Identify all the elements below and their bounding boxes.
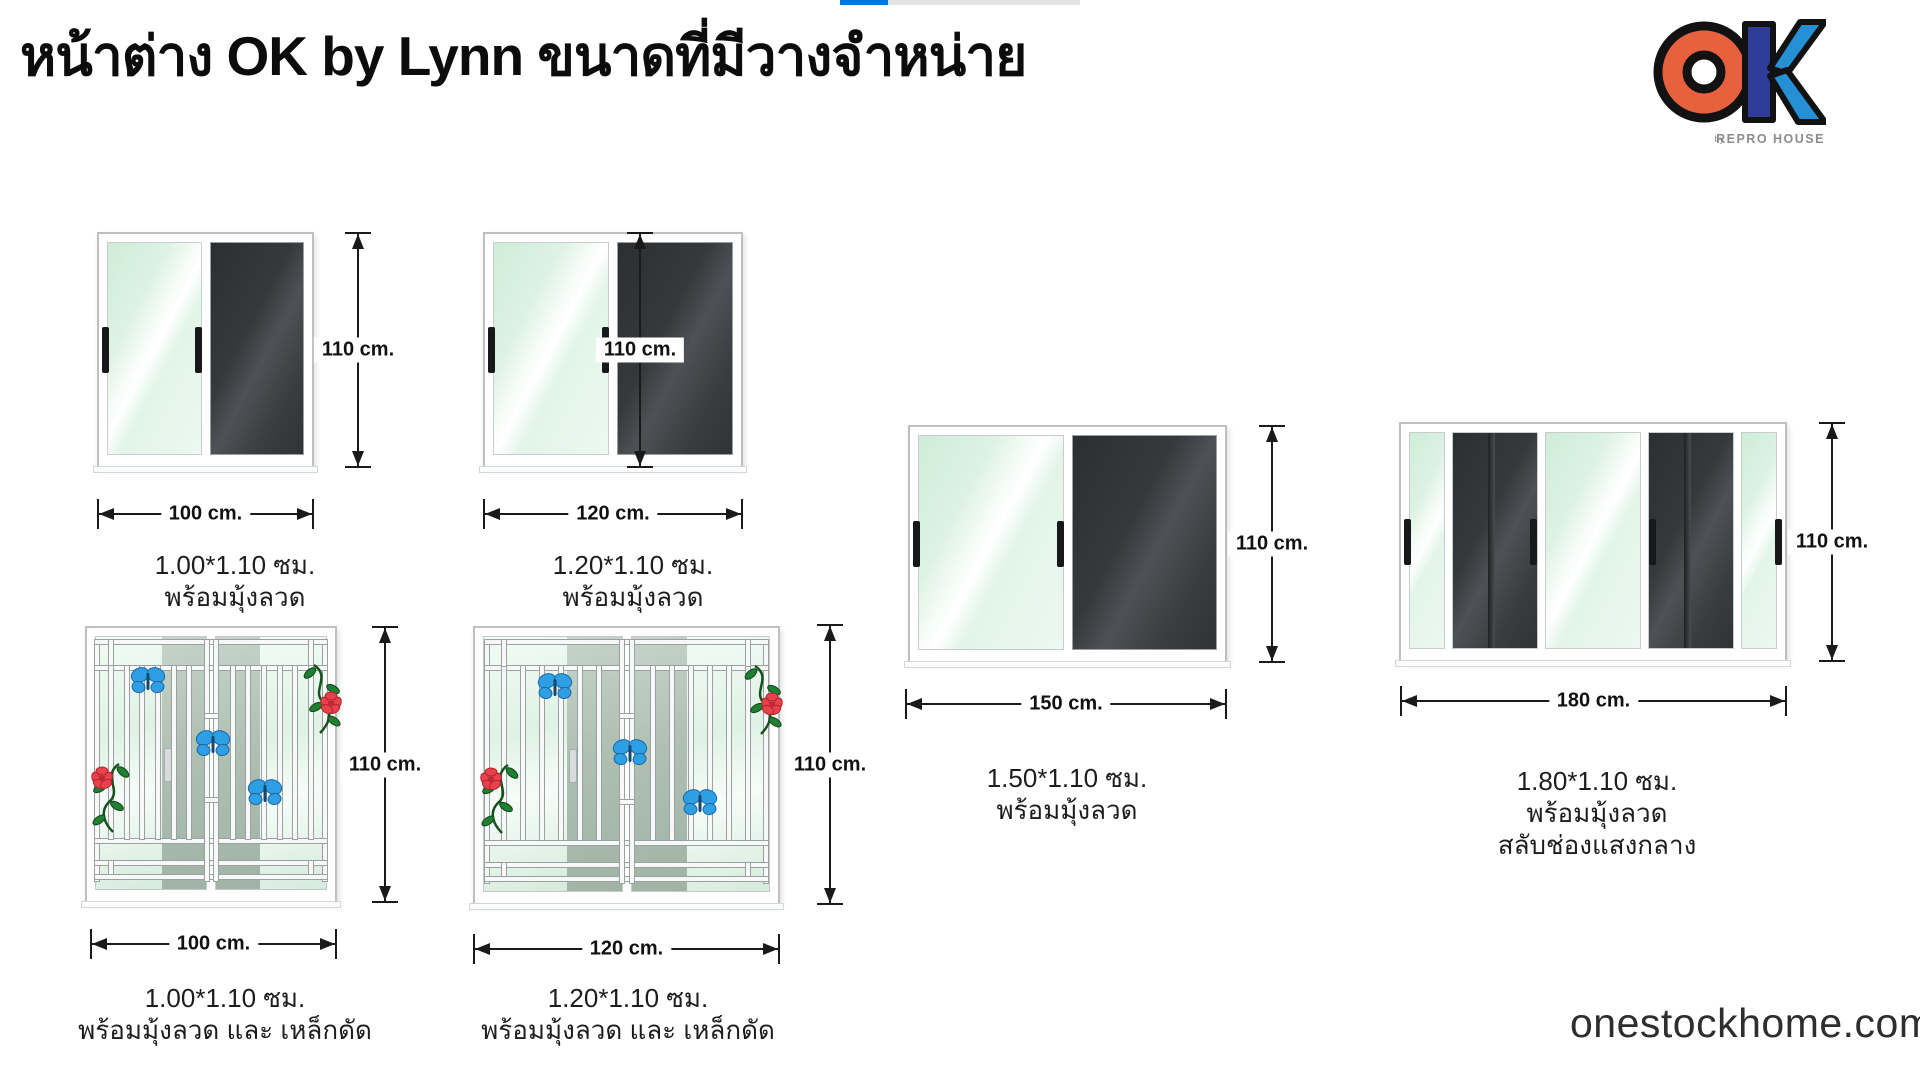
width-dimension-label: 150 cm. xyxy=(1021,692,1110,717)
caption-line: 1.20*1.10 ซม. xyxy=(458,982,798,1014)
screen-panel xyxy=(1452,432,1537,649)
screen-panel xyxy=(210,242,305,455)
window-sill xyxy=(81,901,341,908)
caption-line: พร้อมมุ้งลวด และ เหล็กดัด xyxy=(458,1014,798,1046)
height-dimension-label: 110 cm. xyxy=(1788,530,1876,555)
handle xyxy=(195,327,202,373)
width-dimension-label: 120 cm. xyxy=(582,937,671,962)
window-sill xyxy=(469,903,784,910)
ok-logo-icon: OK by REPRO HOUSE xyxy=(1648,10,1826,152)
butterfly-icon xyxy=(246,778,284,808)
flower-vine-icon xyxy=(298,655,344,735)
width-dimension-label: 120 cm. xyxy=(568,502,657,527)
caption-line: 1.00*1.10 ซม. xyxy=(55,982,395,1014)
handle xyxy=(1649,519,1656,565)
window-sill xyxy=(904,661,1231,668)
height-dimension: 110 cm. xyxy=(372,626,398,903)
height-dimension: 110 cm. xyxy=(345,232,371,468)
width-dimension-label: 100 cm. xyxy=(161,502,250,527)
brand-logo: OK by REPRO HOUSE xyxy=(1648,10,1826,152)
caption-line: พร้อมมุ้งลวด และ เหล็กดัด xyxy=(55,1014,395,1046)
glass-panel xyxy=(1409,432,1445,649)
scrollbar-thumb[interactable] xyxy=(840,0,888,5)
screen-panel xyxy=(1072,435,1218,650)
height-dimension-label: 110 cm. xyxy=(596,338,684,363)
butterfly-icon xyxy=(536,672,574,702)
window-frame xyxy=(908,425,1227,663)
height-dimension-label: 110 cm. xyxy=(341,752,429,777)
window-sill xyxy=(93,466,318,473)
handle xyxy=(1530,519,1537,565)
window-frame xyxy=(473,626,780,905)
logo-byline-name: REPRO HOUSE xyxy=(1716,132,1825,146)
caption-line: พร้อมมุ้งลวด xyxy=(65,581,405,613)
window-frame xyxy=(97,232,314,468)
window-caption: 1.80*1.10 ซม. พร้อมมุ้งลวด สลับช่องแสงกล… xyxy=(1427,765,1767,861)
caption-line: พร้อมมุ้งลวด xyxy=(463,581,803,613)
window-caption: 1.50*1.10 ซม. พร้อมมุ้งลวด xyxy=(897,762,1237,826)
width-dimension-label: 100 cm. xyxy=(169,932,258,957)
glass-panel xyxy=(493,242,609,455)
width-dimension: 100 cm. xyxy=(97,499,314,529)
flower-vine-icon xyxy=(739,656,785,736)
k-glyph xyxy=(1745,22,1825,122)
height-dimension: 110 cm. xyxy=(627,232,653,468)
window-frame xyxy=(85,626,337,903)
caption-line: 1.50*1.10 ซม. xyxy=(897,762,1237,794)
flower-vine-icon xyxy=(478,755,524,835)
height-dimension-label: 110 cm. xyxy=(786,752,874,777)
scrollbar-track xyxy=(840,0,1080,5)
height-dimension-label: 110 cm. xyxy=(314,338,402,363)
window-caption: 1.00*1.10 ซม. พร้อมมุ้งลวด xyxy=(65,549,405,613)
butterfly-icon xyxy=(611,738,649,768)
glass-panel xyxy=(1741,432,1777,649)
screen-panel xyxy=(1648,432,1733,649)
width-dimension: 150 cm. xyxy=(905,689,1227,719)
screen-panel xyxy=(216,637,260,889)
handle xyxy=(1775,519,1782,565)
flower-vine-icon xyxy=(89,754,135,834)
glass-panel xyxy=(918,435,1064,650)
page-title: หน้าต่าง OK by Lynn ขนาดที่มีวางจำหน่าย xyxy=(20,16,1280,96)
handle xyxy=(569,749,577,783)
caption-line: พร้อมมุ้งลวด xyxy=(1427,797,1767,829)
butterfly-icon xyxy=(129,666,167,696)
handle xyxy=(102,327,109,373)
o-glyph xyxy=(1658,26,1750,118)
handle xyxy=(1404,519,1411,565)
handle xyxy=(488,327,495,373)
caption-line: สลับช่องแสงกลาง xyxy=(1427,829,1767,861)
height-dimension: 110 cm. xyxy=(1819,422,1845,662)
window-sill xyxy=(479,466,747,473)
website-text: onestockhome.com xyxy=(1570,1000,1900,1047)
window-caption: 1.20*1.10 ซม. พร้อมมุ้งลวด และ เหล็กดัด xyxy=(458,982,798,1046)
height-dimension: 110 cm. xyxy=(1259,425,1285,663)
butterfly-icon xyxy=(681,788,719,818)
height-dimension-label: 110 cm. xyxy=(1228,532,1316,557)
handle xyxy=(1057,521,1064,567)
caption-line: 1.20*1.10 ซม. xyxy=(463,549,803,581)
handle xyxy=(913,521,920,567)
width-dimension-label: 180 cm. xyxy=(1549,689,1638,714)
glass-panel-center xyxy=(1545,432,1642,649)
caption-line: 1.00*1.10 ซม. xyxy=(65,549,405,581)
window-sill xyxy=(1395,660,1791,667)
height-dimension: 110 cm. xyxy=(817,624,843,905)
width-dimension: 180 cm. xyxy=(1400,686,1787,716)
butterfly-icon xyxy=(194,729,232,759)
caption-line: 1.80*1.10 ซม. xyxy=(1427,765,1767,797)
width-dimension: 100 cm. xyxy=(90,929,337,959)
width-dimension: 120 cm. xyxy=(483,499,743,529)
glass-panel xyxy=(107,242,202,455)
caption-line: พร้อมมุ้งลวด xyxy=(897,794,1237,826)
window-caption: 1.20*1.10 ซม. พร้อมมุ้งลวด xyxy=(463,549,803,613)
window-caption: 1.00*1.10 ซม. พร้อมมุ้งลวด และ เหล็กดัด xyxy=(55,982,395,1046)
width-dimension: 120 cm. xyxy=(473,934,780,964)
window-frame xyxy=(1399,422,1787,662)
